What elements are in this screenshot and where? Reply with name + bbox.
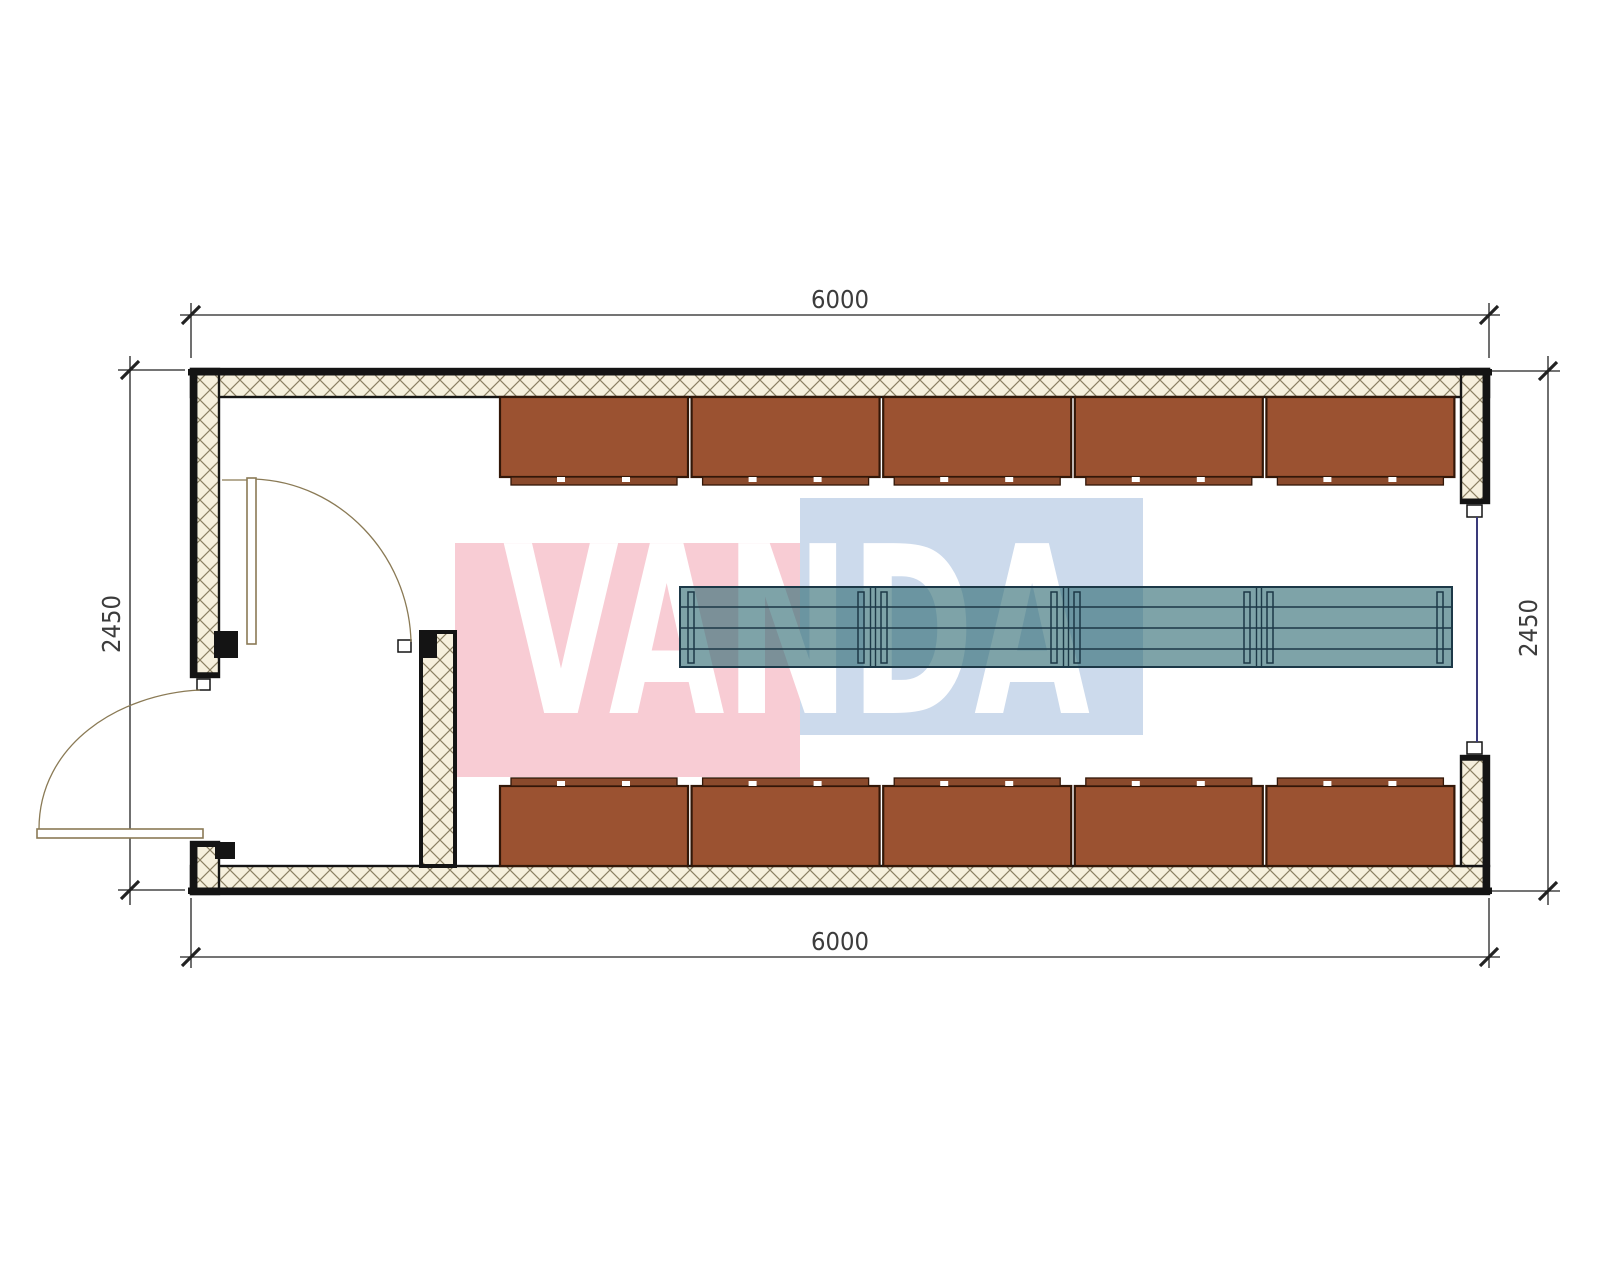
cabinet-feet	[511, 778, 677, 786]
cabinet-feet-notch	[1132, 477, 1140, 482]
dimension-bottom: 6000	[180, 898, 1500, 968]
entry-jamb-step	[215, 842, 235, 859]
cabinet-feet-notch	[557, 781, 565, 786]
doorway-jamb-block	[214, 631, 238, 658]
cabinet-feet-notch	[940, 477, 948, 482]
door-stop	[197, 679, 210, 690]
cabinet	[883, 786, 1071, 866]
cabinets-top	[500, 397, 1454, 485]
cabinet-feet-notch	[749, 477, 757, 482]
dimension-bottom-label: 6000	[811, 927, 869, 956]
cabinet-feet-notch	[1197, 477, 1205, 482]
interior-door-leaf	[247, 478, 256, 644]
dimension-top: 6000	[180, 285, 1500, 358]
cabinet-feet	[894, 477, 1060, 485]
cabinet-feet	[1086, 477, 1252, 485]
table-top-surface	[680, 587, 1452, 667]
cabinet-feet-notch	[814, 781, 822, 786]
cabinet	[1266, 786, 1454, 866]
cabinet-feet-notch	[1323, 781, 1331, 786]
floor-plan-canvas: VANDA 6000 6000 2450 2450	[0, 0, 1600, 1280]
cabinet-feet	[894, 778, 1060, 786]
cabinet-feet-notch	[1132, 781, 1140, 786]
cabinet-feet	[703, 778, 869, 786]
window-jamb-stop	[1467, 742, 1482, 754]
cabinet-feet-notch	[1197, 781, 1205, 786]
dimension-right-label: 2450	[1514, 599, 1543, 657]
cabinet-feet-notch	[557, 477, 565, 482]
window-jamb-stop	[1467, 505, 1482, 517]
cabinet	[500, 786, 688, 866]
interior-door-swing-arc	[254, 479, 411, 642]
entry-door	[37, 690, 203, 838]
dimension-right: 2450	[1492, 356, 1560, 905]
door-stop	[398, 640, 411, 652]
cabinet-feet	[1086, 778, 1252, 786]
cabinet-feet	[511, 477, 677, 485]
cabinet	[1075, 397, 1263, 477]
partition-cap	[421, 632, 437, 658]
cabinet-feet	[1277, 778, 1443, 786]
cabinet-feet-notch	[1005, 781, 1013, 786]
cabinet	[1075, 786, 1263, 866]
cabinet-feet-notch	[622, 781, 630, 786]
cabinet-feet-notch	[1388, 477, 1396, 482]
cabinet-feet	[1277, 477, 1443, 485]
cabinet-feet	[703, 477, 869, 485]
cabinet-feet-notch	[749, 781, 757, 786]
entry-door-leaf	[37, 829, 203, 838]
entry-door-swing-arc	[39, 690, 200, 829]
cabinet	[500, 397, 688, 477]
cabinet-feet-notch	[940, 781, 948, 786]
dimension-left-label: 2450	[97, 595, 126, 653]
cabinets-bottom	[500, 778, 1454, 866]
dimension-top-label: 6000	[811, 285, 869, 314]
cabinet	[692, 397, 880, 477]
partition-wall	[421, 632, 455, 866]
cabinet	[883, 397, 1071, 477]
cabinet-feet-notch	[1388, 781, 1396, 786]
work-table	[680, 587, 1452, 667]
cabinet-feet-notch	[622, 477, 630, 482]
cabinet-feet-notch	[814, 477, 822, 482]
floor-plan-drawing: VANDA 6000 6000 2450 2450	[0, 0, 1600, 1280]
cabinet-feet-notch	[1323, 477, 1331, 482]
cabinet	[692, 786, 880, 866]
cabinet-feet-notch	[1005, 477, 1013, 482]
dimension-left: 2450	[97, 356, 185, 905]
cabinet	[1266, 397, 1454, 477]
interior-door	[222, 478, 411, 644]
